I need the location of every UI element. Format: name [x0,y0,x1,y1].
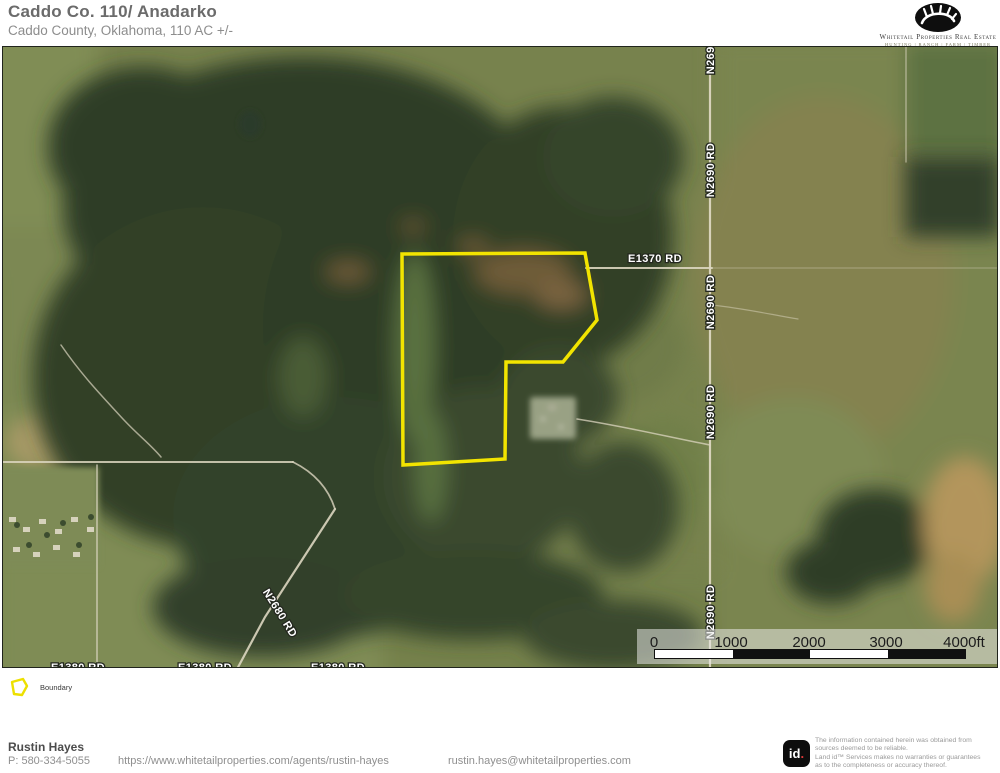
disclaimer-line: sources deemed to be reliable. [815,745,997,753]
road-label-n2690: N2690 RD [705,143,717,198]
road-label-e1380: E1380 RD [51,662,105,667]
legend: Boundary [8,674,72,700]
agent-website-link[interactable]: https://www.whitetailproperties.com/agen… [118,755,389,767]
disclaimer: The information contained herein was obt… [815,737,997,770]
road-label-n2690-top: N2690 RD [705,47,717,74]
scale-bar: 0 1000 2000 3000 4000ft [637,629,997,664]
legend-boundary-label: Boundary [40,683,72,692]
road-label-e1370: E1370 RD [628,253,682,265]
road-label-n2690: N2690 RD [705,275,717,330]
satellite-map: E1370 RD N2690 RD N2690 RD N2690 RD N269… [3,47,997,667]
brand-name: Whitetail Properties Real Estate [878,33,998,41]
road-label-e1380: E1380 RD [311,662,365,667]
agent-phone: P: 580-334-5055 [8,755,90,767]
landid-logo: id. [783,740,810,767]
landid-logo-text: id [789,746,801,761]
road-label-n2690: N2690 RD [705,385,717,440]
road-label-e1380: E1380 RD [178,662,232,667]
map-canvas: E1370 RD N2690 RD N2690 RD N2690 RD N269… [3,47,997,667]
disclaimer-line: Land id™ Services makes no warranties or… [815,754,997,762]
brand-block: Whitetail Properties Real Estate HUNTING… [878,0,998,47]
page-subtitle: Caddo County, Oklahoma, 110 AC +/- [8,23,233,38]
agent-email-link[interactable]: rustin.hayes@whitetailproperties.com [448,755,631,767]
scale-bar-segments [654,649,966,659]
page-title: Caddo Co. 110/ Anadarko [8,2,217,22]
antler-logo-icon [914,2,962,33]
boundary-legend-icon [8,676,30,698]
agent-name: Rustin Hayes [8,740,84,754]
disclaimer-line: The information contained herein was obt… [815,737,997,745]
disclaimer-line: as to the completeness or accuracy there… [815,762,997,770]
landid-logo-dot: . [800,746,804,761]
